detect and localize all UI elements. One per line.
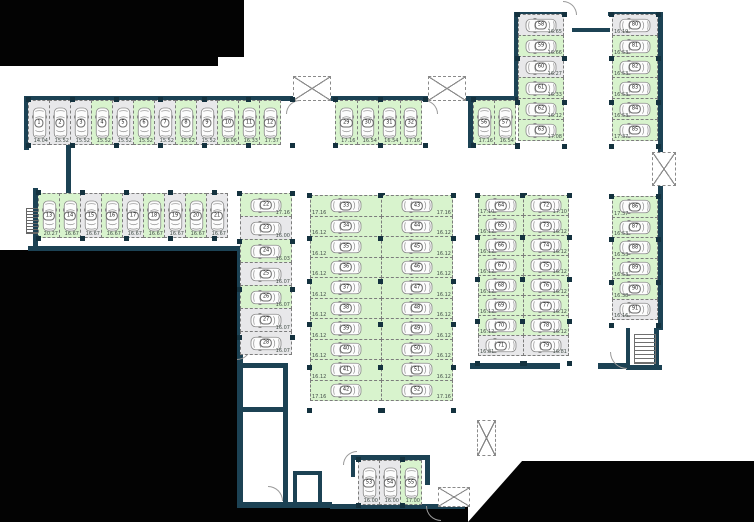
- space-number: 21: [211, 211, 223, 220]
- parking-space-32[interactable]: 3217.16: [400, 100, 423, 145]
- parking-space-21[interactable]: 2116.67: [206, 193, 228, 238]
- column-marker: [36, 190, 41, 195]
- column-marker: [609, 12, 614, 17]
- vent-shaft-icon: [438, 487, 470, 507]
- space-number: 73: [540, 221, 552, 230]
- parking-space-50[interactable]: 5016.12: [381, 339, 453, 361]
- parking-space-30[interactable]: 3016.54: [357, 100, 380, 145]
- space-area-label: 16.54: [363, 138, 377, 144]
- column-marker: [158, 143, 163, 148]
- parking-space-49[interactable]: 4916.12: [381, 318, 453, 340]
- space-number: 3: [76, 118, 85, 127]
- space-number: 29: [340, 118, 352, 127]
- space-number: 65: [495, 221, 507, 230]
- space-number: 24: [260, 247, 272, 256]
- space-number: 46: [411, 263, 423, 272]
- column-marker: [515, 144, 520, 149]
- column-marker: [656, 12, 661, 17]
- column-marker: [237, 335, 242, 340]
- column-marker: [378, 236, 383, 241]
- space-number: 68: [495, 281, 507, 290]
- space-number: 43: [411, 201, 423, 210]
- wall: [572, 28, 610, 32]
- column-marker: [168, 190, 173, 195]
- parking-space-87[interactable]: 8716.53: [612, 217, 658, 239]
- outside-area: [0, 250, 238, 512]
- stairs-icon[interactable]: [634, 334, 656, 364]
- column-marker: [356, 503, 361, 508]
- column-marker: [307, 236, 312, 241]
- column-marker: [475, 193, 480, 198]
- parking-space-48[interactable]: 4816.12: [381, 298, 453, 320]
- wall: [318, 471, 322, 506]
- column-marker: [562, 12, 567, 17]
- space-number: 58: [535, 21, 547, 30]
- column-marker: [562, 100, 567, 105]
- space-number: 66: [495, 241, 507, 250]
- column-marker: [520, 361, 525, 366]
- column-marker: [451, 322, 456, 327]
- space-number: 50: [411, 345, 423, 354]
- space-number: 86: [629, 202, 641, 211]
- column-marker: [307, 408, 312, 413]
- parking-space-74[interactable]: 7416.12: [523, 235, 569, 256]
- column-marker: [451, 236, 456, 241]
- column-marker: [520, 235, 525, 240]
- parking-space-41[interactable]: 4116.12: [310, 359, 382, 381]
- space-number: 39: [340, 324, 352, 333]
- parking-space-81[interactable]: 8116.53: [612, 35, 658, 57]
- space-number: 45: [411, 242, 423, 251]
- parking-space-35[interactable]: 3516.12: [310, 236, 382, 258]
- parking-col-33-42: 3317.163416.123516.123616.123716.123816.…: [310, 195, 382, 410]
- column-marker: [378, 97, 383, 102]
- column-marker: [515, 56, 520, 61]
- parking-space-3[interactable]: 315.52: [70, 100, 92, 145]
- parking-space-67[interactable]: 6716.12: [478, 255, 524, 276]
- space-number: 8: [181, 118, 190, 127]
- parking-space-82[interactable]: 8216.53: [612, 56, 658, 78]
- parking-space-54[interactable]: 5416.00: [379, 460, 401, 505]
- space-number: 80: [629, 21, 641, 30]
- space-area-label: 15.52: [55, 138, 69, 144]
- column-marker: [451, 193, 456, 198]
- parking-space-77[interactable]: 7716.12: [523, 295, 569, 316]
- column-marker: [378, 365, 383, 370]
- parking-space-71[interactable]: 7116.81: [478, 335, 524, 356]
- parking-space-29[interactable]: 2917.16: [335, 100, 358, 145]
- parking-space-33[interactable]: 3317.16: [310, 195, 382, 217]
- column-marker: [168, 236, 173, 241]
- space-number: 69: [495, 301, 507, 310]
- parking-space-2[interactable]: 215.52: [49, 100, 71, 145]
- column-marker: [378, 322, 383, 327]
- parking-space-31[interactable]: 3116.54: [378, 100, 401, 145]
- space-number: 63: [535, 126, 547, 135]
- parking-space-24[interactable]: 2416.03: [240, 239, 292, 263]
- space-area-label: 17.16: [479, 138, 493, 144]
- parking-space-39[interactable]: 3916.12: [310, 318, 382, 340]
- space-number: 71: [495, 341, 507, 350]
- column-marker: [451, 408, 456, 413]
- parking-space-70[interactable]: 7016.12: [478, 315, 524, 336]
- column-marker: [475, 277, 480, 282]
- space-number: 37: [340, 283, 352, 292]
- parking-space-20[interactable]: 2016.67: [185, 193, 207, 238]
- column-marker: [290, 335, 295, 340]
- parking-space-12[interactable]: 1217.37: [259, 100, 281, 145]
- column-marker: [520, 319, 525, 324]
- parking-space-56[interactable]: 5617.16: [473, 100, 495, 145]
- parking-col-86-91: 8617.378716.538816.538916.539016.389116.…: [612, 196, 658, 325]
- column-marker: [237, 287, 242, 292]
- column-marker: [26, 143, 31, 148]
- parking-space-59[interactable]: 5916.66: [518, 35, 564, 57]
- column-marker: [423, 97, 428, 102]
- parking-space-47[interactable]: 4716.12: [381, 277, 453, 299]
- parking-space-84[interactable]: 8416.53: [612, 98, 658, 120]
- door-arc[interactable]: [424, 100, 438, 114]
- parking-col-64-71: 6417.106516.126616.126716.126816.126916.…: [478, 195, 524, 363]
- column-marker: [609, 194, 614, 199]
- parking-space-63[interactable]: 6317.08: [518, 119, 564, 141]
- column-marker: [378, 408, 383, 413]
- space-area-label: 14.04: [34, 138, 48, 144]
- column-marker: [307, 279, 312, 284]
- space-number: 52: [411, 386, 423, 395]
- column-marker: [356, 457, 361, 462]
- column-marker: [333, 143, 338, 148]
- space-area-label: 17.16: [341, 138, 355, 144]
- parking-space-26[interactable]: 2616.07: [240, 285, 292, 309]
- column-marker: [290, 239, 295, 244]
- column-marker: [656, 100, 661, 105]
- space-number: 32: [405, 118, 417, 127]
- door-arc[interactable]: [268, 486, 283, 501]
- space-number: 57: [499, 118, 511, 127]
- space-number: 35: [340, 242, 352, 251]
- column-marker: [378, 193, 383, 198]
- parking-space-79[interactable]: 7916.81: [523, 335, 569, 356]
- parking-space-44[interactable]: 4416.12: [381, 216, 453, 238]
- space-number: 64: [495, 201, 507, 210]
- column-marker: [212, 236, 217, 241]
- parking-space-88[interactable]: 8816.53: [612, 237, 658, 259]
- column-marker: [307, 193, 312, 198]
- outside-area: [0, 0, 218, 66]
- parking-space-9[interactable]: 915.52: [196, 100, 218, 145]
- space-area-label: 17.37: [265, 138, 279, 144]
- parking-space-37[interactable]: 3716.12: [310, 277, 382, 299]
- column-marker: [124, 236, 129, 241]
- parking-space-64[interactable]: 6417.10: [478, 195, 524, 216]
- space-number: 41: [340, 365, 352, 374]
- parking-space-52[interactable]: 5217.16: [381, 380, 453, 402]
- parking-space-55[interactable]: 5517.00: [400, 460, 422, 505]
- column-marker: [36, 236, 41, 241]
- parking-row-53-55: 5316.005416.005517.00: [358, 460, 424, 505]
- column-marker: [515, 100, 520, 105]
- space-area-label: 20.27: [44, 231, 58, 237]
- space-number: 72: [540, 201, 552, 210]
- column-marker: [562, 144, 567, 149]
- parking-space-86[interactable]: 8617.37: [612, 196, 658, 218]
- column-marker: [451, 365, 456, 370]
- wall: [283, 363, 288, 508]
- parking-space-85[interactable]: 8517.37: [612, 119, 658, 141]
- parking-space-76[interactable]: 7616.12: [523, 275, 569, 296]
- parking-space-40[interactable]: 4016.12: [310, 339, 382, 361]
- column-marker: [520, 193, 525, 198]
- parking-space-89[interactable]: 8916.53: [612, 258, 658, 280]
- parking-space-45[interactable]: 4516.12: [381, 236, 453, 258]
- wall: [658, 186, 663, 330]
- column-marker: [656, 56, 661, 61]
- space-area-label: 16.81: [553, 349, 567, 355]
- space-number: 81: [629, 42, 641, 51]
- space-area-label: 16.67: [191, 231, 205, 237]
- column-marker: [212, 190, 217, 195]
- parking-row-13-21: 1320.271416.671516.671616.671716.671816.…: [38, 193, 236, 238]
- parking-space-34[interactable]: 3416.12: [310, 216, 382, 238]
- space-number: 85: [629, 126, 641, 135]
- space-number: 47: [411, 283, 423, 292]
- parking-space-42[interactable]: 4217.16: [310, 380, 382, 402]
- column-marker: [567, 319, 572, 324]
- space-number: 84: [629, 105, 641, 114]
- parking-space-14[interactable]: 1416.67: [59, 193, 81, 238]
- column-marker: [333, 97, 338, 102]
- space-area-label: 15.52: [76, 138, 90, 144]
- space-number: 67: [495, 261, 507, 270]
- column-marker: [290, 191, 295, 196]
- space-number: 91: [629, 305, 641, 314]
- space-number: 38: [340, 304, 352, 313]
- parking-space-10[interactable]: 1016.06: [217, 100, 239, 145]
- space-number: 78: [540, 321, 552, 330]
- space-area-label: 17.16: [437, 394, 451, 400]
- parking-space-7[interactable]: 715.52: [154, 100, 176, 145]
- parking-space-66[interactable]: 6616.12: [478, 235, 524, 256]
- parking-space-11[interactable]: 1116.33: [238, 100, 260, 145]
- parking-space-5[interactable]: 515.52: [112, 100, 134, 145]
- vent-shaft-icon: [428, 76, 466, 101]
- column-marker: [124, 190, 129, 195]
- space-number: 20: [190, 211, 202, 220]
- wall: [658, 12, 663, 154]
- parking-space-72[interactable]: 7217.10: [523, 195, 569, 216]
- wall: [470, 363, 560, 369]
- space-area-label: 16.54: [500, 138, 514, 144]
- parking-space-58[interactable]: 5816.65: [518, 14, 564, 36]
- column-marker: [567, 193, 572, 198]
- column-marker: [609, 237, 614, 242]
- space-number: 23: [260, 224, 272, 233]
- column-marker: [202, 97, 207, 102]
- parking-space-19[interactable]: 1916.67: [164, 193, 186, 238]
- space-number: 10: [222, 118, 234, 127]
- parking-space-91[interactable]: 9116.16: [612, 299, 658, 321]
- space-number: 26: [260, 293, 272, 302]
- column-marker: [567, 277, 572, 282]
- column-marker: [562, 56, 567, 61]
- space-number: 79: [540, 341, 552, 350]
- space-number: 54: [384, 478, 396, 487]
- column-marker: [80, 190, 85, 195]
- column-marker: [237, 191, 242, 196]
- column-marker: [378, 143, 383, 148]
- space-number: 76: [540, 281, 552, 290]
- outside-area: [218, 0, 244, 57]
- door-arc[interactable]: [343, 451, 357, 465]
- space-number: 30: [362, 118, 374, 127]
- column-marker: [237, 239, 242, 244]
- column-marker: [307, 322, 312, 327]
- space-number: 70: [495, 321, 507, 330]
- parking-col-72-79: 7217.107316.127416.127516.127616.127716.…: [523, 195, 569, 363]
- column-marker: [609, 56, 614, 61]
- column-marker: [656, 194, 661, 199]
- space-number: 12: [264, 118, 276, 127]
- space-number: 18: [148, 211, 160, 220]
- parking-col-58-63: 5816.655916.666016.276116.336216.126317.…: [518, 14, 564, 146]
- column-marker: [515, 12, 520, 17]
- space-number: 13: [43, 211, 55, 220]
- parking-space-27[interactable]: 2716.07: [240, 308, 292, 332]
- parking-space-75[interactable]: 7516.12: [523, 255, 569, 276]
- column-marker: [378, 279, 383, 284]
- parking-space-69[interactable]: 6916.12: [478, 295, 524, 316]
- space-number: 56: [478, 118, 490, 127]
- space-number: 83: [629, 84, 641, 93]
- space-area-label: 15.52: [97, 138, 111, 144]
- space-number: 19: [169, 211, 181, 220]
- space-area-label: 17.16: [406, 138, 420, 144]
- column-marker: [567, 361, 572, 366]
- space-number: 16: [106, 211, 118, 220]
- parking-space-83[interactable]: 8316.53: [612, 77, 658, 99]
- column-marker: [290, 143, 295, 148]
- parking-space-53[interactable]: 5316.00: [358, 460, 380, 505]
- parking-space-38[interactable]: 3816.12: [310, 298, 382, 320]
- parking-space-65[interactable]: 6516.12: [478, 215, 524, 236]
- space-number: 88: [629, 243, 641, 252]
- parking-space-62[interactable]: 6216.12: [518, 98, 564, 120]
- space-number: 42: [340, 386, 352, 395]
- vent-shaft-icon: [293, 76, 331, 101]
- column-marker: [609, 100, 614, 105]
- column-marker: [114, 143, 119, 148]
- space-area-label: 16.54: [384, 138, 398, 144]
- space-number: 61: [535, 84, 547, 93]
- space-number: 15: [85, 211, 97, 220]
- column-marker: [656, 323, 661, 328]
- column-marker: [290, 97, 295, 102]
- space-number: 74: [540, 241, 552, 250]
- space-area-label: 16.67: [107, 231, 121, 237]
- vent-shaft-icon: [652, 152, 676, 186]
- space-number: 51: [411, 365, 423, 374]
- parking-space-57[interactable]: 5716.54: [494, 100, 516, 145]
- column-marker: [656, 144, 661, 149]
- column-marker: [471, 97, 476, 102]
- space-number: 44: [411, 222, 423, 231]
- parking-row-1-12: 114.04215.52315.52415.52515.52615.52715.…: [28, 100, 292, 145]
- column-marker: [475, 235, 480, 240]
- column-marker: [475, 319, 480, 324]
- parking-space-22[interactable]: 2217.16: [240, 193, 292, 217]
- parking-row-29-32: 2917.163016.543116.543217.16: [335, 100, 425, 145]
- column-marker: [609, 323, 614, 328]
- space-area-label: 16.67: [128, 231, 142, 237]
- space-number: 36: [340, 263, 352, 272]
- parking-space-51[interactable]: 5116.12: [381, 359, 453, 381]
- space-number: 89: [629, 264, 641, 273]
- parking-space-36[interactable]: 3616.12: [310, 257, 382, 279]
- parking-floor-plan: 114.04215.52315.52415.52515.52615.52715.…: [0, 0, 754, 522]
- parking-space-18[interactable]: 1816.67: [143, 193, 165, 238]
- space-number: 27: [260, 316, 272, 325]
- parking-col-80-85: 8016.198116.538216.538316.538416.538517.…: [612, 14, 658, 146]
- parking-space-23[interactable]: 2316.00: [240, 216, 292, 240]
- wall: [66, 143, 71, 195]
- parking-space-78[interactable]: 7816.12: [523, 315, 569, 336]
- column-marker: [400, 457, 405, 462]
- parking-space-8[interactable]: 815.52: [175, 100, 197, 145]
- parking-space-68[interactable]: 6816.12: [478, 275, 524, 296]
- parking-space-6[interactable]: 615.52: [133, 100, 155, 145]
- parking-space-1[interactable]: 114.04: [28, 100, 50, 145]
- parking-space-46[interactable]: 4616.12: [381, 257, 453, 279]
- parking-space-80[interactable]: 8016.19: [612, 14, 658, 36]
- parking-space-43[interactable]: 4317.16: [381, 195, 453, 217]
- column-marker: [423, 143, 428, 148]
- space-number: 33: [340, 201, 352, 210]
- space-area-label: 17.00: [406, 498, 420, 504]
- parking-space-60[interactable]: 6016.27: [518, 56, 564, 78]
- column-marker: [80, 236, 85, 241]
- outside-area: [468, 455, 754, 522]
- space-number: 6: [139, 118, 148, 127]
- column-marker: [475, 361, 480, 366]
- column-marker: [290, 287, 295, 292]
- wall: [425, 455, 430, 485]
- parking-space-90[interactable]: 9016.38: [612, 278, 658, 300]
- space-number: 14: [64, 211, 76, 220]
- parking-col-43-52: 4317.164416.124516.124616.124716.124816.…: [381, 195, 453, 410]
- space-number: 75: [540, 261, 552, 270]
- space-area-label: 16.07: [276, 348, 290, 354]
- column-marker: [246, 143, 251, 148]
- space-area-label: 16.81: [480, 349, 494, 355]
- space-number: 55: [405, 478, 417, 487]
- parking-space-15[interactable]: 1516.67: [80, 193, 102, 238]
- column-marker: [451, 279, 456, 284]
- space-number: 5: [118, 118, 127, 127]
- parking-space-28[interactable]: 2816.07: [240, 331, 292, 355]
- parking-row-56-57: 5617.165716.54: [473, 100, 517, 145]
- parking-space-25[interactable]: 2516.07: [240, 262, 292, 286]
- parking-space-17[interactable]: 1716.67: [122, 193, 144, 238]
- parking-space-61[interactable]: 6116.33: [518, 77, 564, 99]
- parking-space-13[interactable]: 1320.27: [38, 193, 60, 238]
- space-area-label: 17.37: [614, 134, 628, 140]
- parking-space-73[interactable]: 7316.12: [523, 215, 569, 236]
- parking-space-16[interactable]: 1616.67: [101, 193, 123, 238]
- space-number: 82: [629, 63, 641, 72]
- parking-space-4[interactable]: 415.52: [91, 100, 113, 145]
- space-number: 90: [629, 284, 641, 293]
